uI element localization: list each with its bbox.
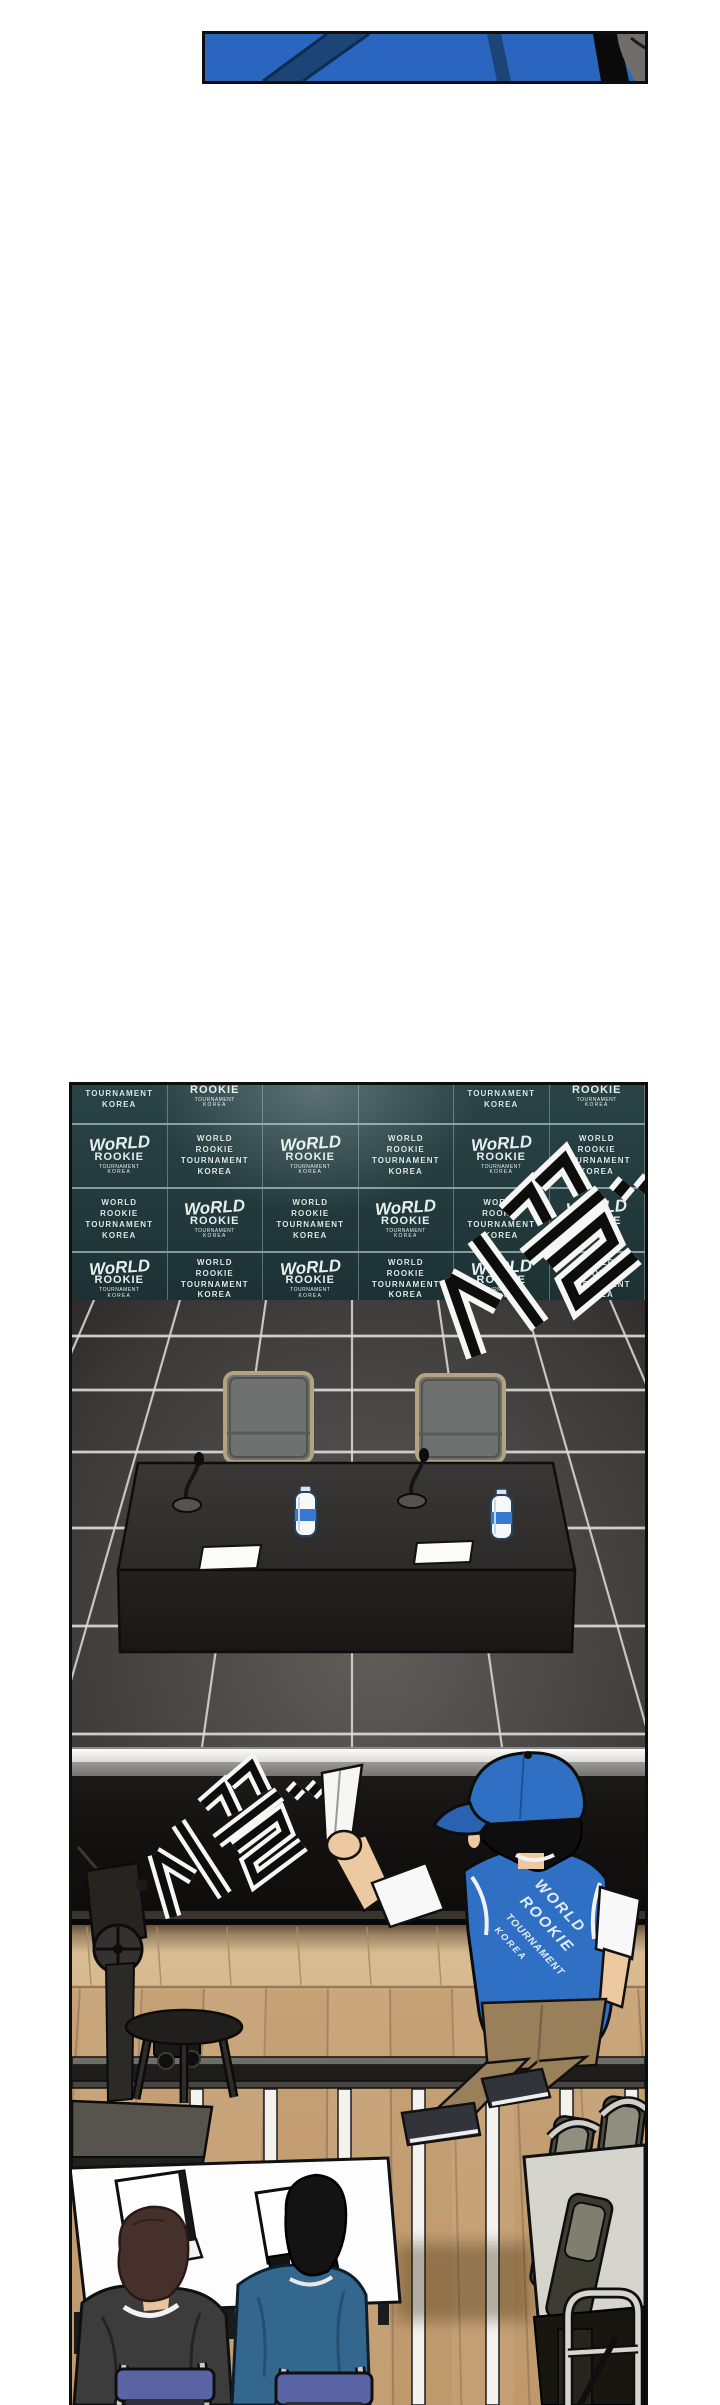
- water-bottle-right: [491, 1489, 512, 1539]
- paper-right: [414, 1541, 473, 1564]
- staff-cap: [468, 1753, 585, 1825]
- chair-pad: [276, 2373, 372, 2405]
- press-table: [118, 1448, 575, 1652]
- chair-left: [225, 1373, 312, 1462]
- table-shadow: [396, 2243, 532, 2321]
- tshirt-sleeve-right: [596, 1887, 640, 1959]
- paper-left: [199, 1545, 261, 1570]
- cap-button: [524, 1751, 532, 1759]
- cart-top: [72, 2101, 212, 2163]
- table-front: [118, 1570, 575, 1652]
- stool-seat: [126, 2010, 242, 2044]
- reporter-chair-left: [116, 2363, 214, 2405]
- scene-objects: WORLD ROOKIE TOURNAMENT KOREA: [72, 1085, 645, 2405]
- panel-press-conference: WORLDROOKIETOURNAMENTKOREAWoRLDROOKIETOU…: [69, 1082, 648, 2405]
- jacket-hood-closeup: [205, 34, 645, 81]
- staff-hand: [327, 1831, 361, 1859]
- webtoon-page: WORLDROOKIETOURNAMENTKOREAWoRLDROOKIETOU…: [0, 0, 720, 2405]
- reporter-left-hair: [119, 2207, 189, 2301]
- panel-top-strip: [202, 31, 648, 84]
- sfx-noise-lower: [127, 1740, 343, 1928]
- chair-pad: [116, 2369, 214, 2401]
- press-chairs: [225, 1373, 504, 1462]
- stacked-chairs-area: [524, 2095, 645, 2405]
- water-bottle-left: [295, 1486, 316, 1536]
- sfx-noise-upper: [413, 1125, 645, 1370]
- reporter-chair-right: [276, 2367, 372, 2405]
- chair-right: [417, 1375, 504, 1462]
- press-desk-area: [72, 2158, 400, 2405]
